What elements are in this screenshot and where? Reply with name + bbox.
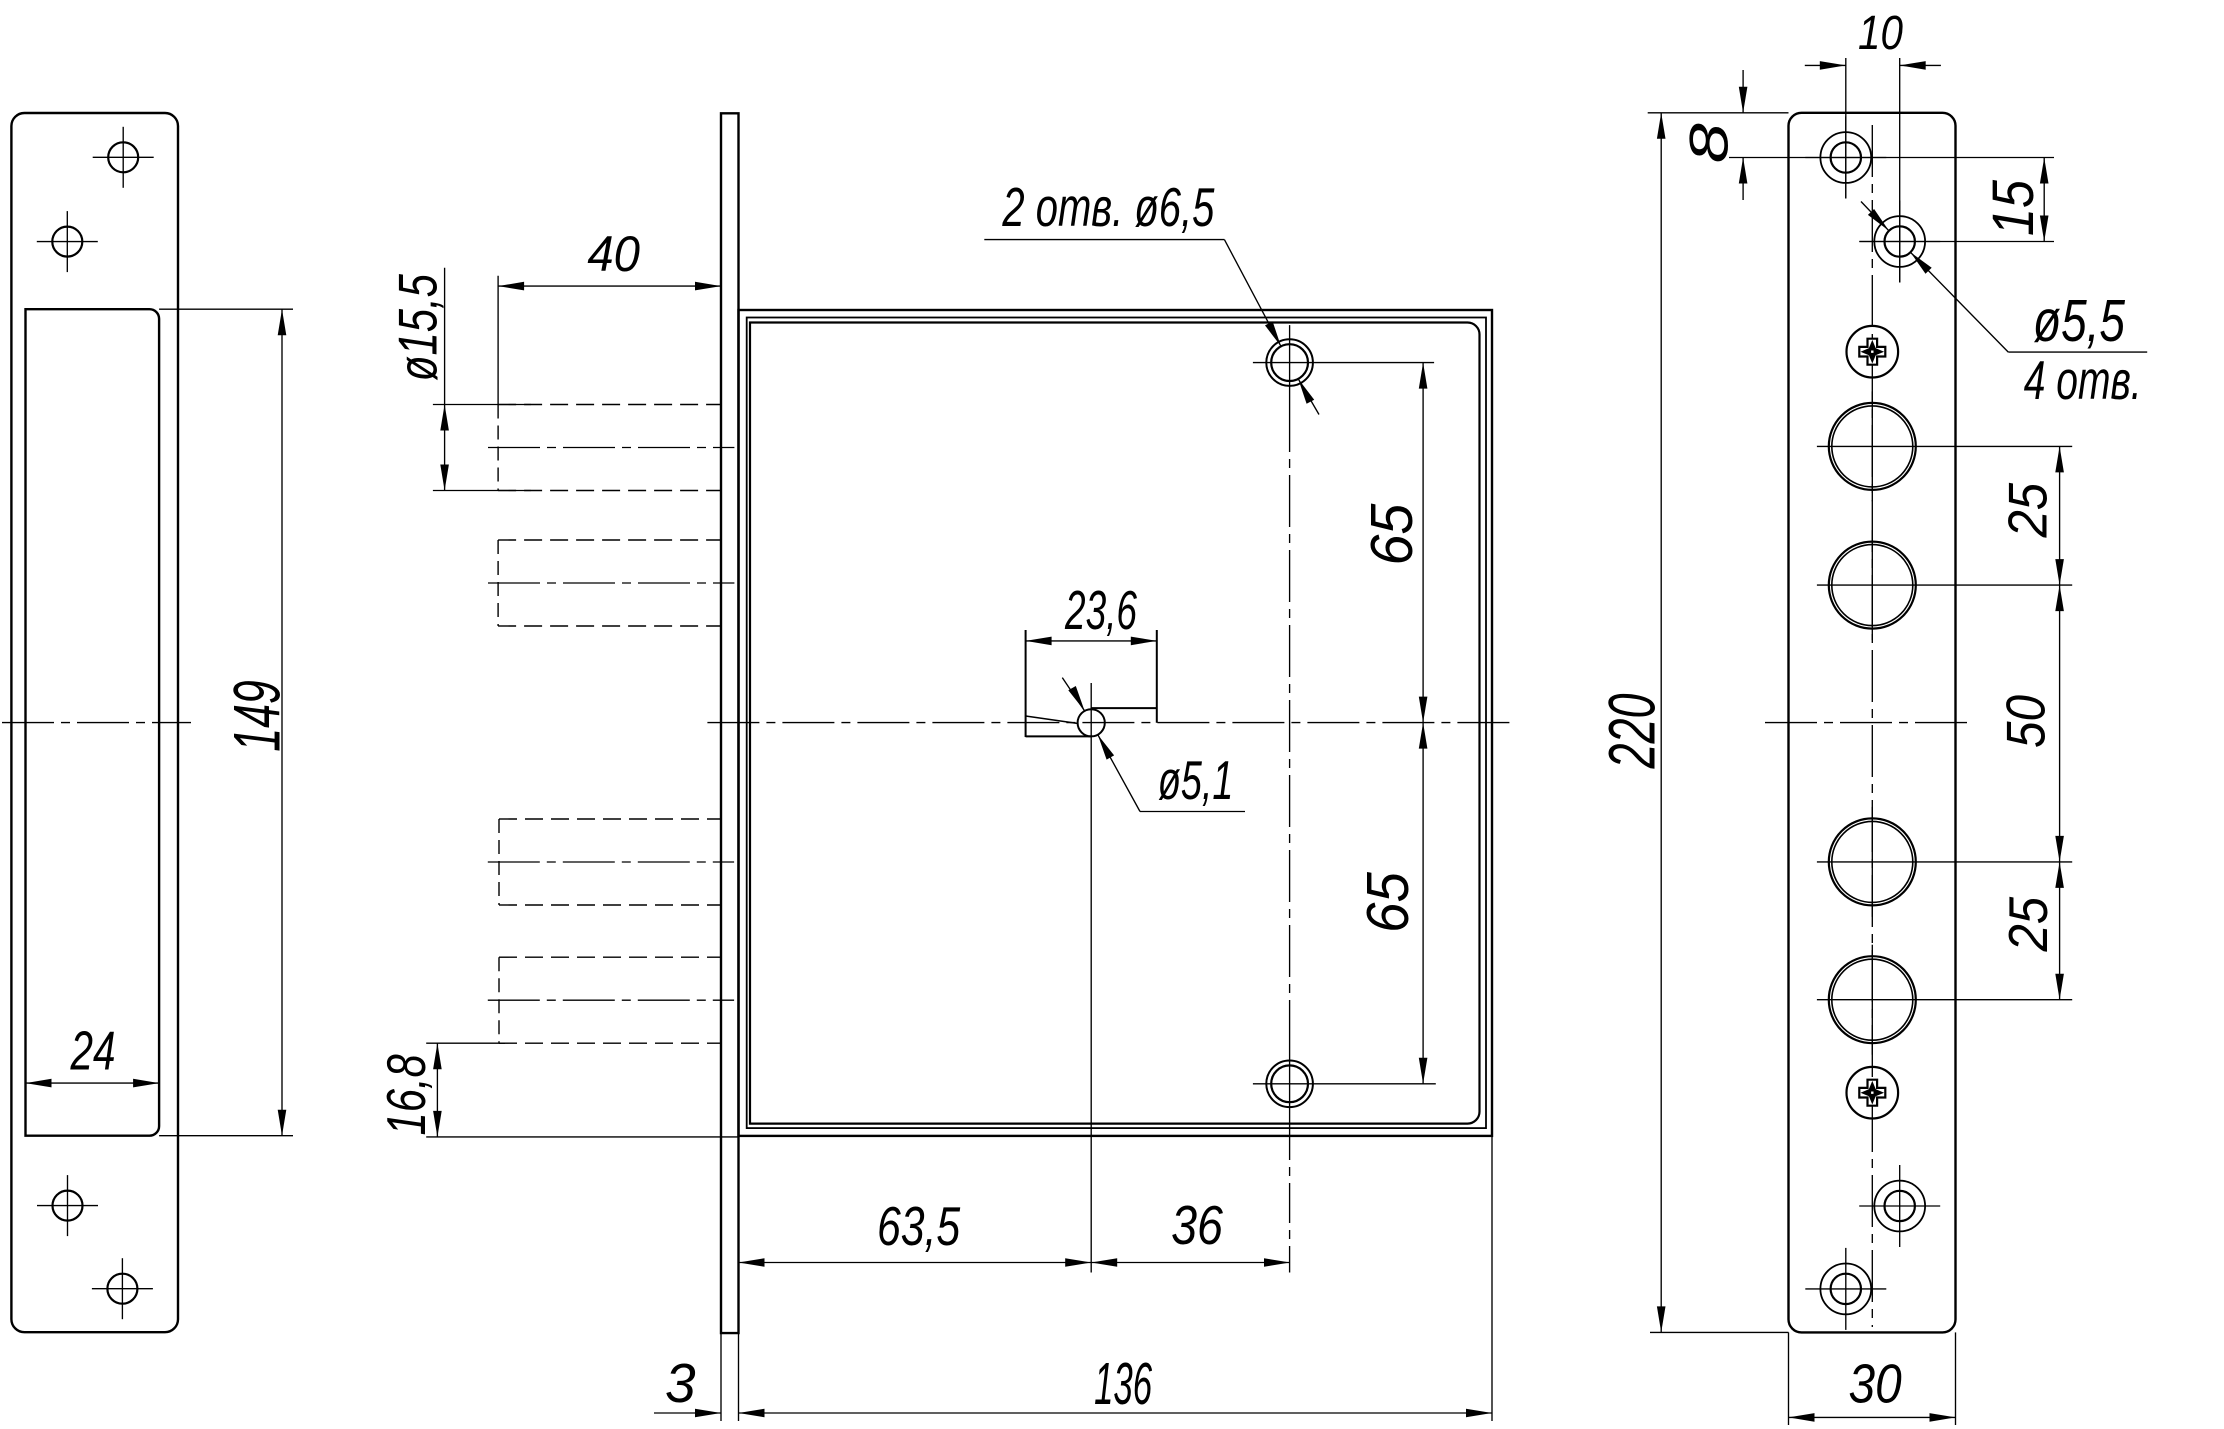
svg-text:ø5,1: ø5,1	[1158, 749, 1234, 811]
svg-text:136: 136	[1094, 1351, 1152, 1417]
svg-text:3: 3	[665, 1352, 696, 1414]
svg-text:ø5,5: ø5,5	[2033, 288, 2125, 354]
svg-text:220: 220	[1594, 693, 1668, 769]
svg-text:30: 30	[1849, 1353, 1902, 1415]
svg-text:24: 24	[70, 1020, 116, 1082]
svg-text:149: 149	[220, 680, 294, 752]
svg-text:40: 40	[587, 226, 640, 282]
svg-text:15: 15	[1981, 179, 2046, 236]
svg-text:10: 10	[1858, 7, 1903, 60]
svg-text:25: 25	[1997, 482, 2059, 538]
svg-text:16,8: 16,8	[375, 1054, 437, 1136]
svg-text:36: 36	[1171, 1194, 1223, 1256]
svg-text:23,6: 23,6	[1064, 579, 1137, 641]
svg-text:4 отв.: 4 отв.	[2024, 349, 2142, 411]
svg-text:65: 65	[1355, 872, 1421, 933]
svg-text:ø15,5: ø15,5	[387, 274, 449, 381]
svg-text:63,5: 63,5	[877, 1195, 961, 1257]
svg-text:50: 50	[1994, 695, 2056, 748]
svg-text:25: 25	[1997, 896, 2059, 952]
svg-text:2 отв. ø6,5: 2 отв. ø6,5	[1002, 176, 1215, 238]
svg-text:65: 65	[1359, 503, 1425, 565]
